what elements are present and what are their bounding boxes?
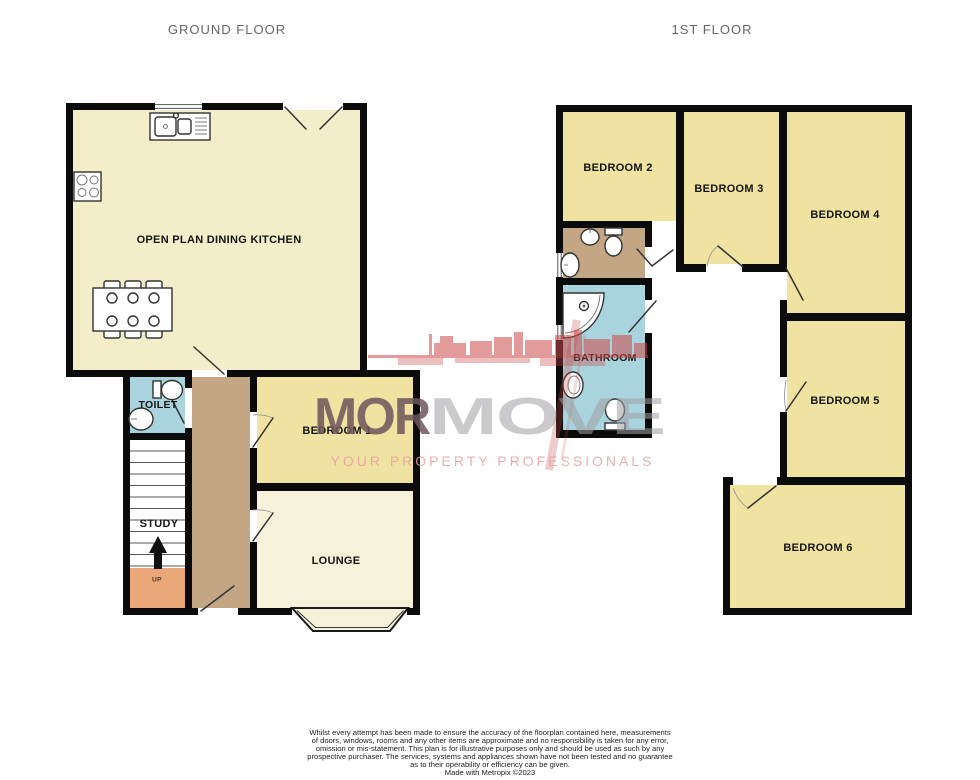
lounge-floor [257, 490, 413, 608]
dining-table-icon [93, 281, 172, 338]
kitchen-sink-icon [150, 113, 210, 140]
room-label-lounge: LOUNGE [312, 555, 361, 567]
wc-toilet-icon [605, 228, 622, 256]
gf-toilet-icon [153, 381, 183, 400]
kitchen-window [155, 103, 202, 110]
room-label-bedroom-6: BEDROOM 6 [783, 542, 852, 554]
room-label-toilet: TOILET [139, 399, 178, 411]
floorplan-graphic [0, 0, 980, 780]
room-label-study: STUDY [140, 518, 179, 530]
room-label-bathroom: BATHROOM [573, 352, 636, 364]
wc-basin-icon [581, 229, 599, 245]
room-label-up: UP [152, 577, 162, 584]
room-label-bedroom-5: BEDROOM 5 [810, 395, 879, 407]
disclaimer-credit: Made with Metropix ©2023 [0, 769, 980, 777]
ground-floor-plan [66, 103, 420, 631]
bay-window [292, 608, 408, 631]
disclaimer: Whilst every attempt has been made to en… [0, 729, 980, 778]
floorplan-page: GROUND FLOOR 1ST FLOOR [0, 0, 980, 780]
bathroom-window [556, 325, 563, 340]
bathroom-basin-icon [563, 372, 583, 398]
hallway-floor [192, 377, 250, 608]
wc-side-basin-icon [561, 253, 579, 277]
up-landing-floor [130, 568, 185, 608]
room-label-kitchen: OPEN PLAN DINING KITCHEN [137, 234, 302, 246]
hob-icon [74, 172, 101, 201]
room-label-bedroom-1: BEDROOM 1 [302, 425, 371, 437]
room-label-bedroom-3: BEDROOM 3 [694, 183, 763, 195]
bathroom-toilet-icon [605, 399, 625, 430]
room-label-bedroom-4: BEDROOM 4 [810, 209, 879, 221]
gf-basin-icon [129, 408, 153, 430]
bedroom2-door [652, 250, 673, 266]
room-label-bedroom-2: BEDROOM 2 [583, 162, 652, 174]
